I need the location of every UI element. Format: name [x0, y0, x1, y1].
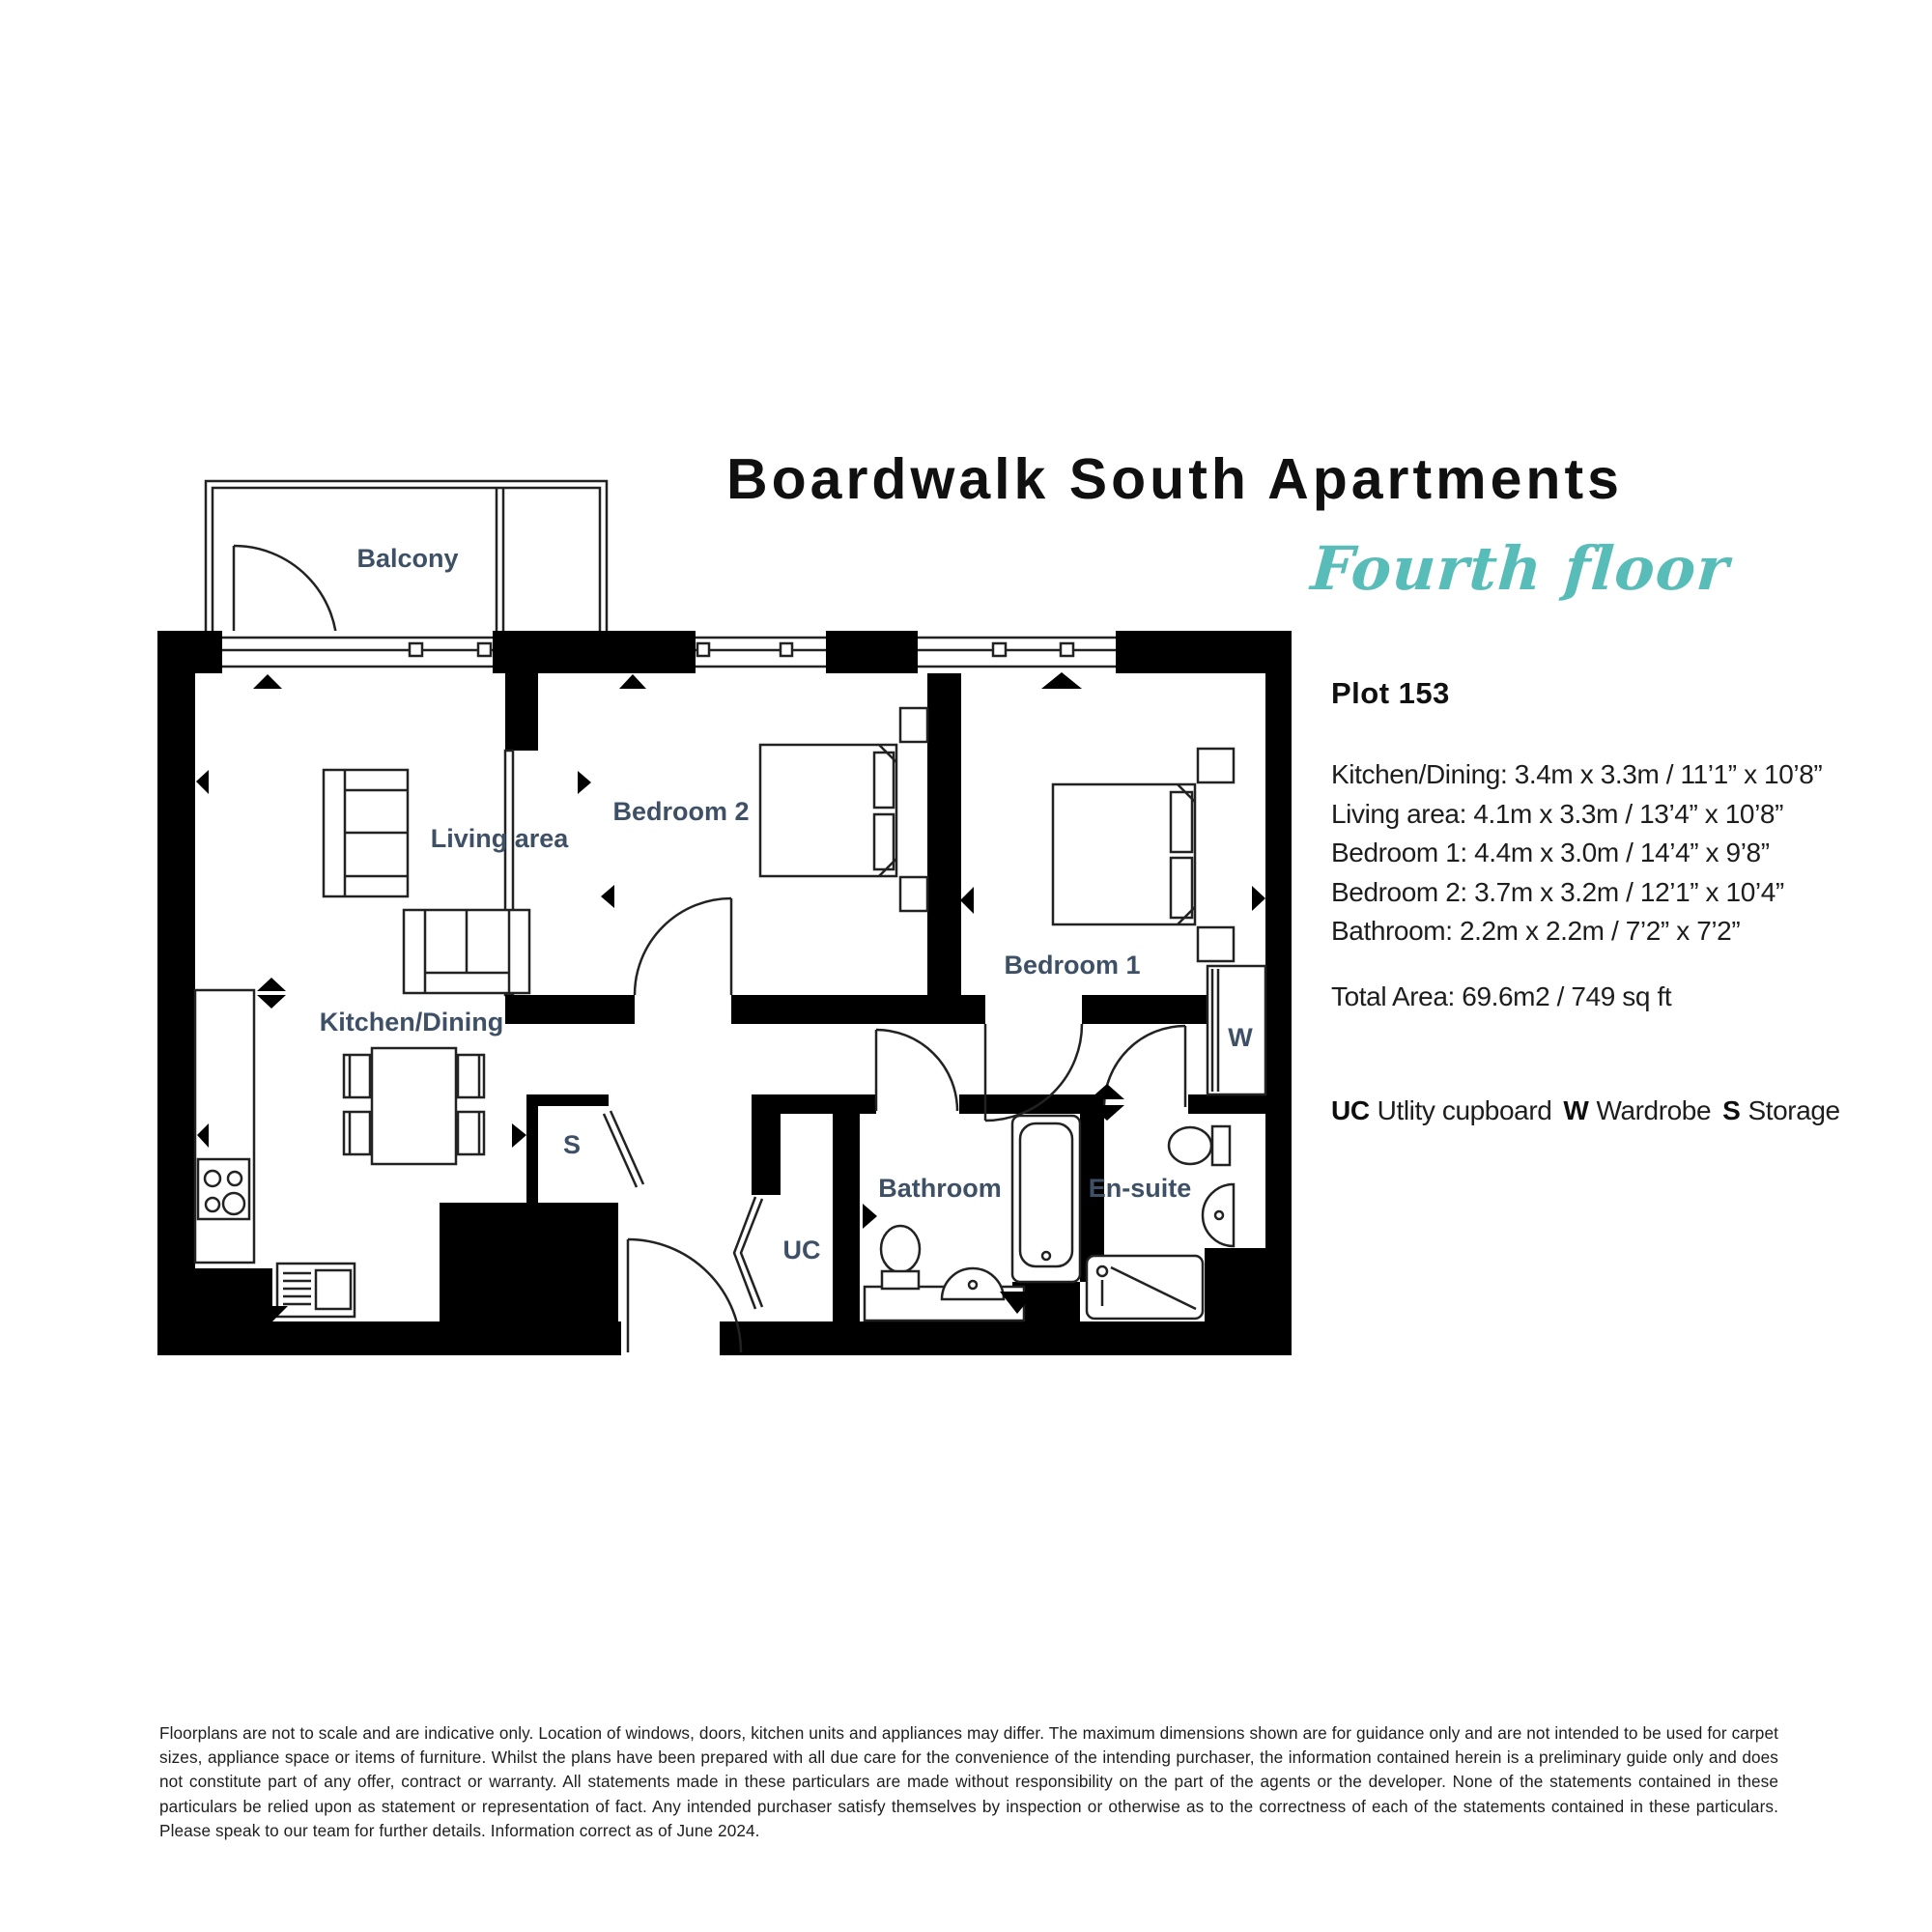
room-label-bathroom: Bathroom: [878, 1174, 1002, 1203]
bathtub: [1012, 1116, 1080, 1282]
room-label-ensuite: En-suite: [1089, 1174, 1192, 1203]
room-label-wardrobe: W: [1228, 1023, 1253, 1052]
toilet-bathroom: [881, 1226, 920, 1289]
room-label-living-area: Living area: [431, 824, 570, 853]
room-label-storage: S: [563, 1130, 581, 1159]
room-label-bedroom2: Bedroom 2: [612, 797, 749, 826]
room-label-bedroom1: Bedroom 1: [1004, 951, 1140, 980]
sink-ensuite: [1203, 1184, 1234, 1246]
hob: [198, 1159, 249, 1219]
window-bedroom1: [918, 631, 1116, 673]
room-label-balcony: Balcony: [356, 544, 458, 573]
shower: [1087, 1256, 1203, 1319]
exterior-walls: [157, 631, 1292, 1355]
kitchen-counter: [195, 990, 254, 1263]
window-bedroom2: [696, 631, 826, 673]
sofa: [404, 910, 529, 993]
armchair: [324, 770, 408, 896]
bed-bedroom1: [1053, 749, 1234, 961]
door-storage: [604, 1111, 643, 1187]
room-label-utility-cupboard: UC: [783, 1236, 821, 1264]
floorplan-drawing: Balcony Living area Kitchen/Dining Bedro…: [0, 0, 1932, 1932]
oven-unit: [277, 1264, 355, 1317]
floorplan-brochure-page: { "header": { "title": "Boardwalk South …: [0, 0, 1932, 1932]
bed-bedroom2: [760, 708, 927, 911]
room-label-kitchen-dining: Kitchen/Dining: [320, 1008, 504, 1037]
door-utility-bifold: [734, 1197, 762, 1309]
dining-table-and-chairs: [344, 1048, 484, 1164]
window-balcony: [222, 631, 493, 673]
toilet-ensuite: [1169, 1126, 1230, 1165]
door-bathroom: [876, 1030, 957, 1111]
door-bedroom2: [635, 898, 731, 995]
sink-bathroom: [942, 1268, 1004, 1299]
